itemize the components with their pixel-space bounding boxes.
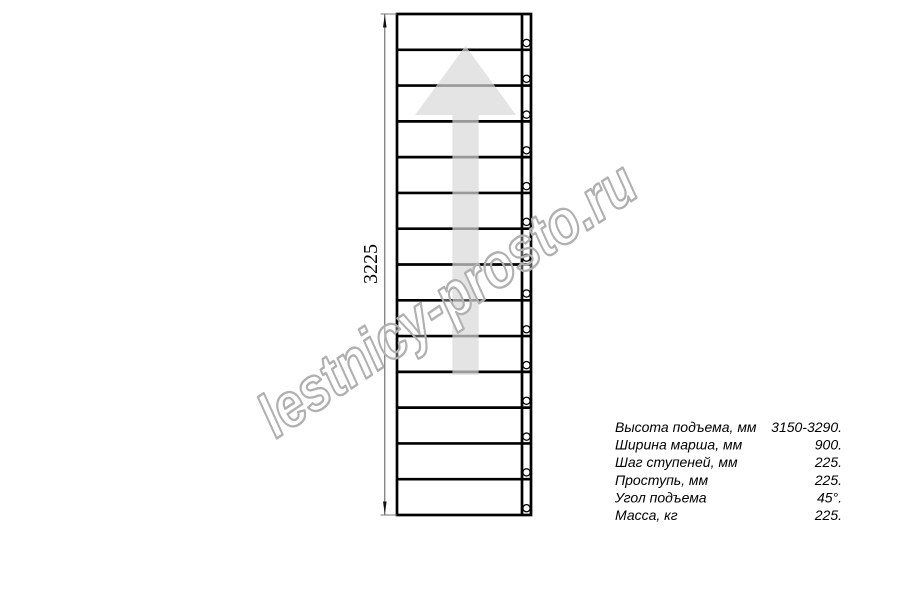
svg-text:225.: 225. <box>814 472 842 488</box>
svg-text:3150-3290.: 3150-3290. <box>771 419 842 435</box>
svg-text:Проступь, мм: Проступь, мм <box>615 472 709 488</box>
svg-text:Шаг ступеней, мм: Шаг ступеней, мм <box>615 454 738 470</box>
svg-text:Угол подъема: Угол подъема <box>614 489 707 505</box>
svg-text:225.: 225. <box>814 454 842 470</box>
svg-text:225.: 225. <box>814 507 842 523</box>
svg-text:45°.: 45°. <box>817 489 842 505</box>
svg-text:3225: 3225 <box>360 244 382 284</box>
svg-text:Ширина марша, мм: Ширина марша, мм <box>615 437 743 453</box>
svg-text:Высота подъема, мм: Высота подъема, мм <box>615 419 757 435</box>
svg-text:Масса, кг: Масса, кг <box>615 507 678 523</box>
svg-text:900.: 900. <box>815 437 842 453</box>
